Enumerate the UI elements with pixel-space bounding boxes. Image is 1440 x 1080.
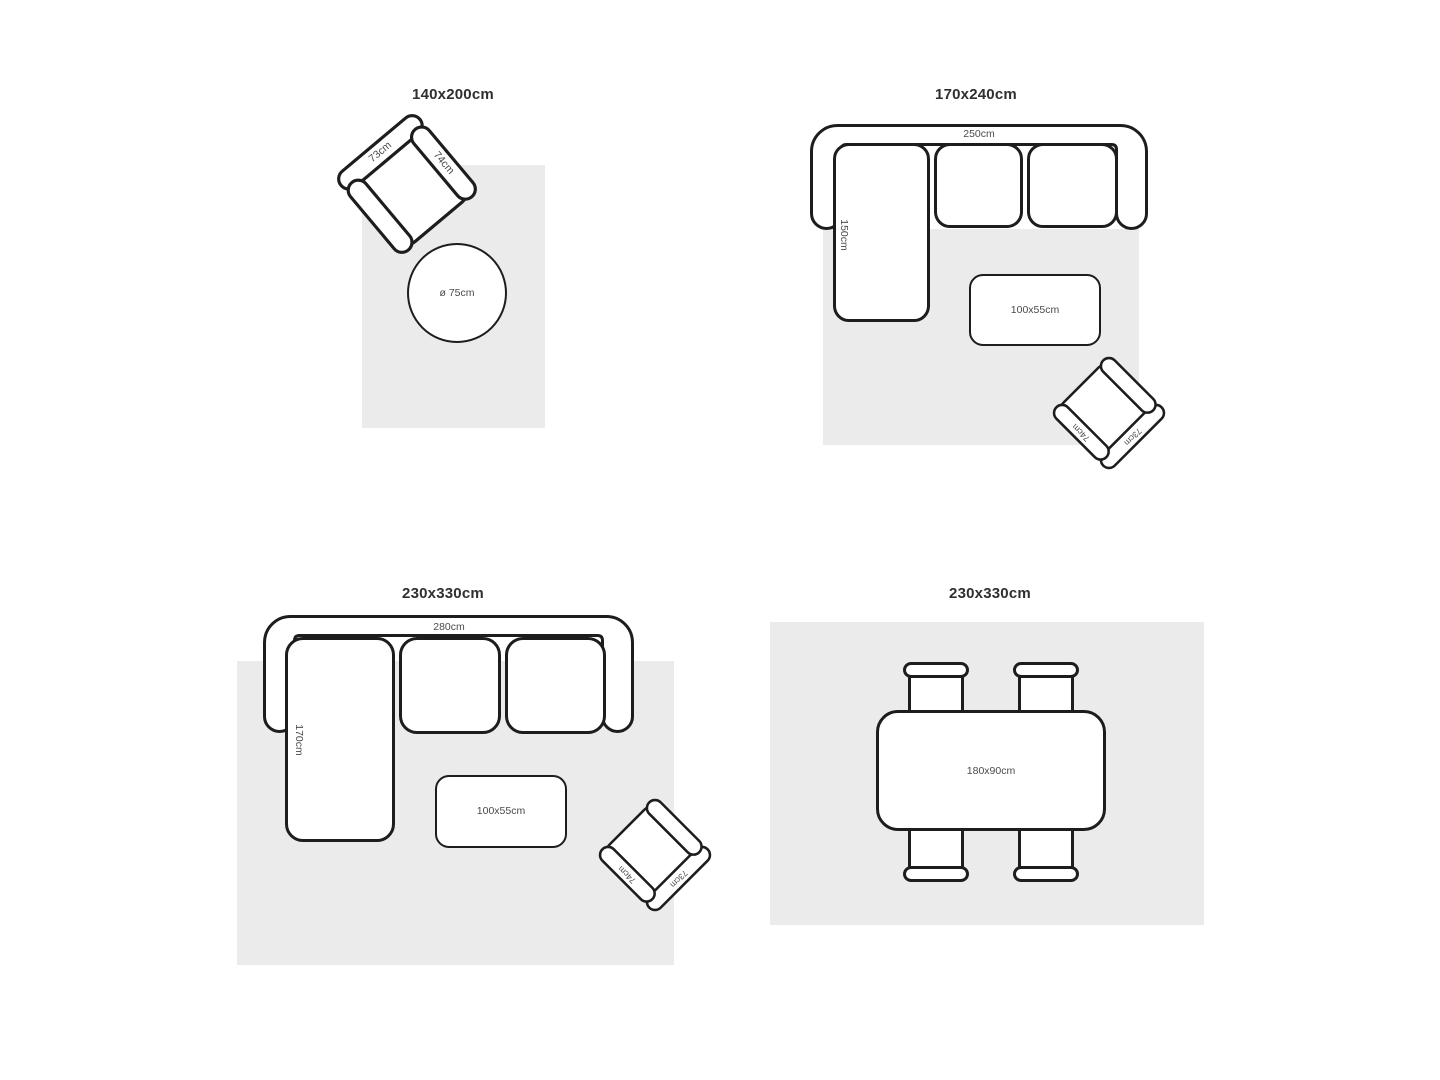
- dining-chair-backrest: [903, 662, 969, 678]
- sofa-length-label: 250cm: [963, 128, 995, 140]
- sofa-cushion: [1027, 143, 1118, 228]
- dining-table-size-label: 180x90cm: [967, 765, 1015, 777]
- armchair-back-size-label: 73cm: [1122, 426, 1143, 447]
- dining-chair-backrest: [1013, 662, 1079, 678]
- panel-title: 170x240cm: [935, 86, 1017, 103]
- dining-chair-backrest: [903, 866, 969, 882]
- dining-table: 180x90cm: [876, 710, 1106, 831]
- sofa-cushion: [934, 143, 1023, 228]
- sofa-cushion: [399, 637, 501, 734]
- coffee-table-size-label: 100x55cm: [1011, 304, 1059, 316]
- rug-size-guide: 140x200cm 73cm 74cm ø 75cm 170x240cm 250…: [0, 0, 1440, 1080]
- sofa-chaise-length-label: 170cm: [293, 724, 305, 756]
- panel-title: 140x200cm: [412, 86, 494, 103]
- sofa-chaise-length-label: 150cm: [838, 219, 850, 251]
- sofa-cushion: [505, 637, 606, 734]
- panel-title: 230x330cm: [402, 585, 484, 602]
- panel-title: 230x330cm: [949, 585, 1031, 602]
- coffee-table-size-label: 100x55cm: [477, 805, 525, 817]
- round-table-size-label: ø 75cm: [439, 287, 474, 299]
- armchair-back-size-label: 73cm: [668, 868, 689, 889]
- sofa-length-label: 280cm: [433, 621, 465, 633]
- dining-chair-backrest: [1013, 866, 1079, 882]
